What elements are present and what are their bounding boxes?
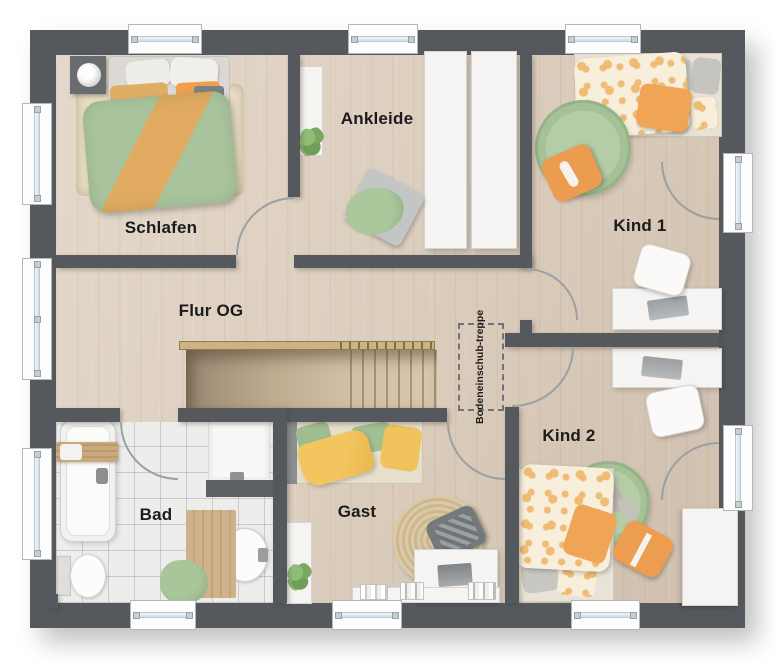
window-kind1-north [565,24,641,54]
potted-plant [299,126,325,158]
window-glazing [136,612,190,618]
window-glazing [34,109,40,199]
wall-kind1-kind2 [505,333,719,347]
window-kind2-east [723,425,753,511]
stair-handrail-balusters [340,342,434,349]
books [400,582,424,600]
window-flur-west [22,258,52,380]
wall-schlafen-ankleide [288,55,300,197]
window-handle [351,36,358,43]
books [468,582,496,600]
window-handle [34,195,41,202]
window-kind1-east [723,153,753,233]
window-gast-south [332,600,402,630]
window-glazing [577,612,634,618]
window-handle [34,316,41,323]
window-handle [392,612,399,619]
window-schlafen-north [128,24,202,54]
toilet-tank [57,556,71,596]
window-bad-south [130,600,196,630]
toilet-bowl [70,554,106,598]
wall-kind1-west [520,55,532,268]
wall-stub [44,594,58,608]
window-glazing [338,612,396,618]
window-glazing [571,36,635,42]
table-lamp [77,63,101,87]
room-label-flur: Flur OG [179,301,244,321]
child2-wardrobe [682,508,738,606]
window-handle [34,550,41,557]
window-glazing [34,454,40,554]
pillow-gray [690,57,722,96]
window-handle [735,428,742,435]
window-handle [186,612,193,619]
window-handle [335,612,342,619]
attic-stairs-label-line1: Bodeneinschub- [473,342,489,424]
laptop [641,356,683,380]
room-label-ankleide: Ankleide [341,109,413,129]
wall-bad-gast-north [178,408,447,422]
pillow-dotted [688,95,719,132]
window-glazing [735,159,741,227]
window-handle [735,501,742,508]
room-label-gast: Gast [338,502,377,522]
basin-faucet [258,548,268,562]
books [360,584,388,600]
wall-bad-gast [273,408,287,603]
window-glazing [134,36,196,42]
window-handle [408,36,415,43]
window-bad-west [22,448,52,560]
window-ankleide-north [348,24,418,54]
attic-stairs-label-line2: treppe [473,310,489,342]
room-label-kind2: Kind 2 [542,426,595,446]
window-handle [133,612,140,619]
potted-plant [287,562,313,592]
window-kind2-south [571,600,640,630]
wardrobe [424,51,467,249]
window-handle [34,370,41,377]
wardrobe [471,51,517,249]
wall-flur-north-west [56,255,236,268]
window-handle [735,156,742,163]
window-schlafen-west [22,103,52,205]
towel-green [160,560,208,604]
wall-flur-north-east [294,255,532,268]
window-handle [34,451,41,458]
stair-treads [350,350,437,408]
window-handle [34,106,41,113]
wall-kind2-west [505,407,519,603]
window-handle [630,612,637,619]
window-handle [192,36,199,43]
bath-faucet [96,468,108,484]
room-label-schlafen: Schlafen [125,218,197,238]
room-label-kind1: Kind 1 [613,216,666,236]
window-handle [34,261,41,268]
floorplan-canvas: Bodeneinschub- treppe [0,0,775,667]
room-label-bad: Bad [140,505,173,525]
pillow-yellow [379,424,423,473]
window-glazing [735,431,741,505]
window-handle [631,36,638,43]
wall-kind1-west-stub [520,320,532,333]
window-glazing [354,36,412,42]
bath-counter [206,480,273,497]
duvet [81,90,238,214]
attic-stairs-annotation: Bodeneinschub- treppe [458,323,504,411]
window-handle [735,223,742,230]
window-handle [131,36,138,43]
window-handle [574,612,581,619]
wall-bad-north-west [56,408,120,422]
window-handle [568,36,575,43]
blanket-orange [635,83,693,134]
attic-stairs-label: Bodeneinschub- treppe [460,325,502,409]
bath-towel [60,444,82,460]
